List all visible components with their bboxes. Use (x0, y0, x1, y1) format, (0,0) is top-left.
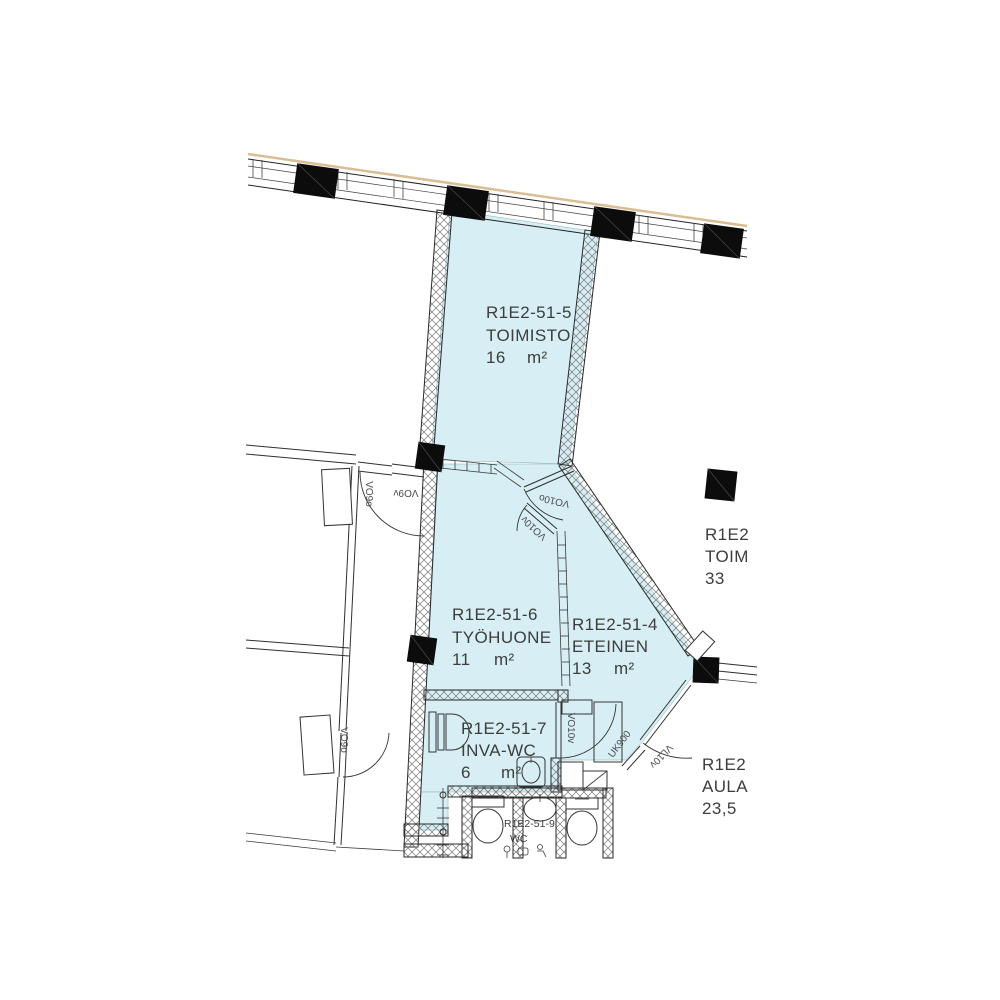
door-label-vo10v-inva: VO10v (565, 713, 576, 744)
room-area-toim-right: 33 (705, 569, 725, 588)
door-label-vl10v: VL10v (647, 742, 675, 770)
room-code-wc: R1E2-51-9 (504, 818, 555, 830)
toilet-icon (472, 796, 504, 843)
room-code-aula: R1E2 (702, 755, 746, 774)
room-area-eteinen: 13 (572, 659, 592, 678)
floor-plan-page: R1E2-51-5 TOIMISTO 16 m² R1E2-51-6 TYÖHU… (0, 0, 1000, 1000)
room-area-aula: 23,5 (702, 799, 737, 818)
door-label-vo9o-a: VO9o (363, 481, 374, 507)
column (705, 469, 738, 502)
column (407, 635, 437, 665)
room-unit-inva-wc: m² (501, 763, 522, 782)
column (415, 442, 445, 472)
room-area-toimisto: 16 (486, 348, 506, 367)
room-code-inva-wc: R1E2-51-7 (461, 719, 547, 738)
column (590, 206, 636, 242)
room-area-tyohuone: 11 (452, 650, 470, 669)
room-name-inva-wc: INVA-WC (461, 741, 536, 760)
room-name-toim-right: TOIM (705, 547, 749, 566)
room-name-tyohuone: TYÖHUONE (452, 628, 552, 647)
room-area-inva-wc: 6 (461, 763, 471, 782)
room-unit-tyohuone: m² (494, 650, 515, 669)
room-name-aula: AULA (702, 777, 748, 796)
room-code-tyohuone: R1E2-51-6 (452, 605, 538, 624)
wc-pictograms (504, 845, 546, 859)
door-label-vo9o-b: VO9o (338, 727, 349, 753)
column (293, 163, 339, 199)
floor-plan: R1E2-51-5 TOIMISTO 16 m² R1E2-51-6 TYÖHU… (0, 0, 1000, 1000)
column (443, 185, 489, 221)
door-label-vo9v: VO9v (393, 487, 418, 498)
toilet-icon (566, 798, 598, 845)
room-name-toimisto: TOIMISTO (486, 326, 571, 345)
room-name-wc: WC (510, 833, 528, 845)
cabinet (322, 468, 353, 525)
room-name-eteinen: ETEINEN (572, 637, 648, 656)
shower-icon (583, 771, 607, 790)
column (700, 223, 744, 258)
room-code-toimisto: R1E2-51-5 (486, 303, 572, 322)
cabinet (300, 715, 334, 775)
room-unit-toimisto: m² (527, 348, 548, 367)
room-code-toim-right: R1E2 (705, 525, 749, 544)
room-code-eteinen: R1E2-51-4 (572, 615, 658, 634)
room-unit-eteinen: m² (614, 659, 635, 678)
